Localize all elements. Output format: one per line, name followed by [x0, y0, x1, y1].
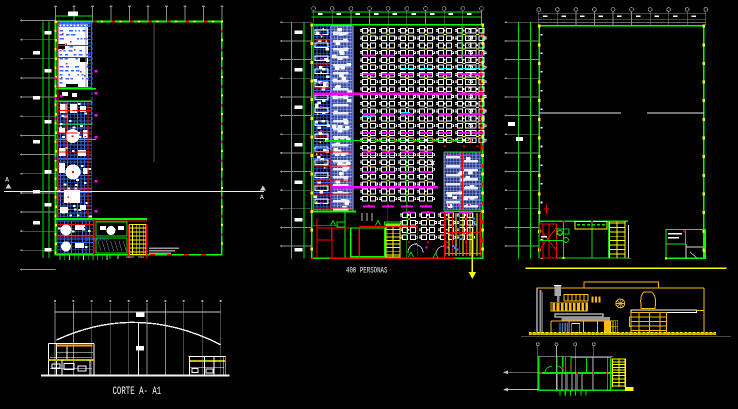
- svg-text:18 PERSONAS: 18 PERSONAS: [86, 238, 109, 243]
- svg-text:CORTE A- A1: CORTE A- A1: [112, 385, 161, 398]
- svg-text:400 PERSONAS: 400 PERSONAS: [346, 267, 387, 276]
- svg-text:A: A: [5, 177, 9, 184]
- svg-text:A: A: [260, 194, 264, 201]
